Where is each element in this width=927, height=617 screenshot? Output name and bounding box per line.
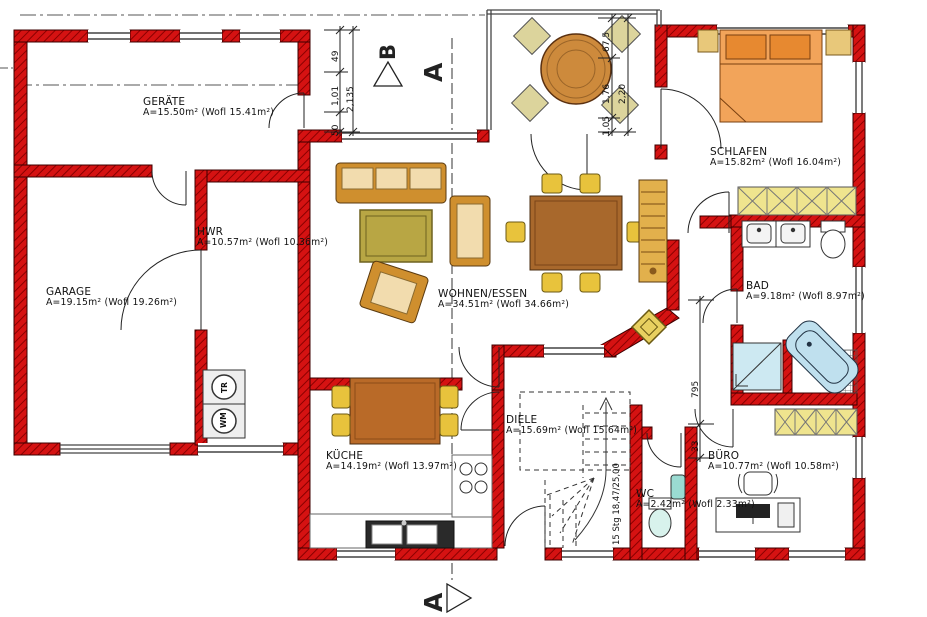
room-label-geraete: GERÄTE A=15.50m² (Wofl 15.41m²) bbox=[143, 96, 274, 119]
shower bbox=[733, 343, 781, 390]
stairs-note: 15 Stg 18,47/25,00 bbox=[612, 463, 622, 545]
room-label-kueche: KÜCHE A=14.19m² (Wofl 13.97m²) bbox=[326, 450, 457, 473]
dim-bay-total: 2,20 bbox=[618, 84, 628, 104]
washer-label: WM bbox=[219, 412, 228, 428]
dim-left-v1: 49 bbox=[331, 51, 341, 62]
centerlines bbox=[0, 15, 485, 85]
room-label-diele: DIELE A=15.69m² (Wofl 15.64m²) bbox=[506, 414, 637, 437]
coffee-table bbox=[360, 210, 432, 262]
dim-bay-v1: 67,5 bbox=[602, 32, 612, 52]
room-area: A=15.69m² (Wofl 15.64m²) bbox=[506, 426, 637, 437]
section-marker-a-bottom: A bbox=[419, 593, 448, 612]
room-label-wc: WC A=2.42m² (Wofl 2.33m²) bbox=[636, 488, 755, 511]
room-area: A=15.82m² (Wofl 16.04m²) bbox=[710, 158, 841, 169]
room-area: A=14.19m² (Wofl 13.97m²) bbox=[326, 462, 457, 473]
room-area: A=10.57m² (Wofl 10.36m²) bbox=[197, 238, 328, 249]
armchair bbox=[359, 260, 429, 324]
bay-table bbox=[541, 34, 611, 104]
room-label-wohnen-essen: WOHNEN/ESSEN A=34.51m² (Wofl 34.66m²) bbox=[438, 288, 569, 311]
side-chair bbox=[450, 196, 490, 266]
kitchen-table bbox=[350, 378, 440, 444]
toilet-bad bbox=[821, 221, 845, 258]
sofa bbox=[336, 163, 446, 203]
vanity bbox=[742, 221, 810, 247]
dim-left-v2: 1,01 bbox=[331, 86, 341, 106]
section-marker-b-top: B bbox=[376, 44, 400, 60]
dim-left-total: 2,135 bbox=[346, 86, 356, 112]
room-area: A=19.15m² (Wofl 19.26m²) bbox=[46, 298, 177, 309]
section-marker-a-top: A bbox=[419, 63, 448, 82]
dim-left-v3: 50 bbox=[331, 125, 341, 136]
room-area: A=34.51m² (Wofl 34.66m²) bbox=[438, 300, 569, 311]
room-label-schlafen: SCHLAFEN A=15.82m² (Wofl 16.04m²) bbox=[710, 146, 841, 169]
kitchen-sink bbox=[366, 521, 454, 549]
nightstand-left bbox=[698, 30, 718, 52]
dining-table bbox=[530, 196, 622, 270]
dim-right-v1: 795 bbox=[691, 381, 701, 398]
room-label-hwr: HWR A=10.57m² (Wofl 10.36m²) bbox=[197, 226, 328, 249]
room-area: A=10.77m² (Wofl 10.58m²) bbox=[708, 462, 839, 473]
room-area: A=2.42m² (Wofl 2.33m²) bbox=[636, 500, 755, 511]
dim-bay-v2: 1,76 bbox=[602, 84, 612, 104]
floor-plan: GERÄTE A=15.50m² (Wofl 15.41m²) GARAGE A… bbox=[0, 0, 927, 617]
room-label-bad: BAD A=9.18m² (Wofl 8.97m²) bbox=[746, 280, 865, 303]
room-area: A=15.50m² (Wofl 15.41m²) bbox=[143, 108, 274, 119]
dryer-label: TR bbox=[220, 382, 229, 393]
room-area: A=9.18m² (Wofl 8.97m²) bbox=[746, 292, 865, 303]
sideboard bbox=[639, 180, 667, 282]
dim-bay-v3: 1,05 bbox=[602, 116, 612, 136]
room-label-buero: BÜRO A=10.77m² (Wofl 10.58m²) bbox=[708, 450, 839, 473]
wardrobe-schlafen bbox=[738, 187, 856, 215]
wardrobe-buero bbox=[775, 409, 857, 435]
bed bbox=[720, 30, 822, 122]
dim-right-v2: 33 bbox=[691, 441, 701, 452]
nightstand-right bbox=[826, 30, 851, 55]
garage-door bbox=[60, 445, 170, 453]
room-label-garage: GARAGE A=19.15m² (Wofl 19.26m²) bbox=[46, 286, 177, 309]
